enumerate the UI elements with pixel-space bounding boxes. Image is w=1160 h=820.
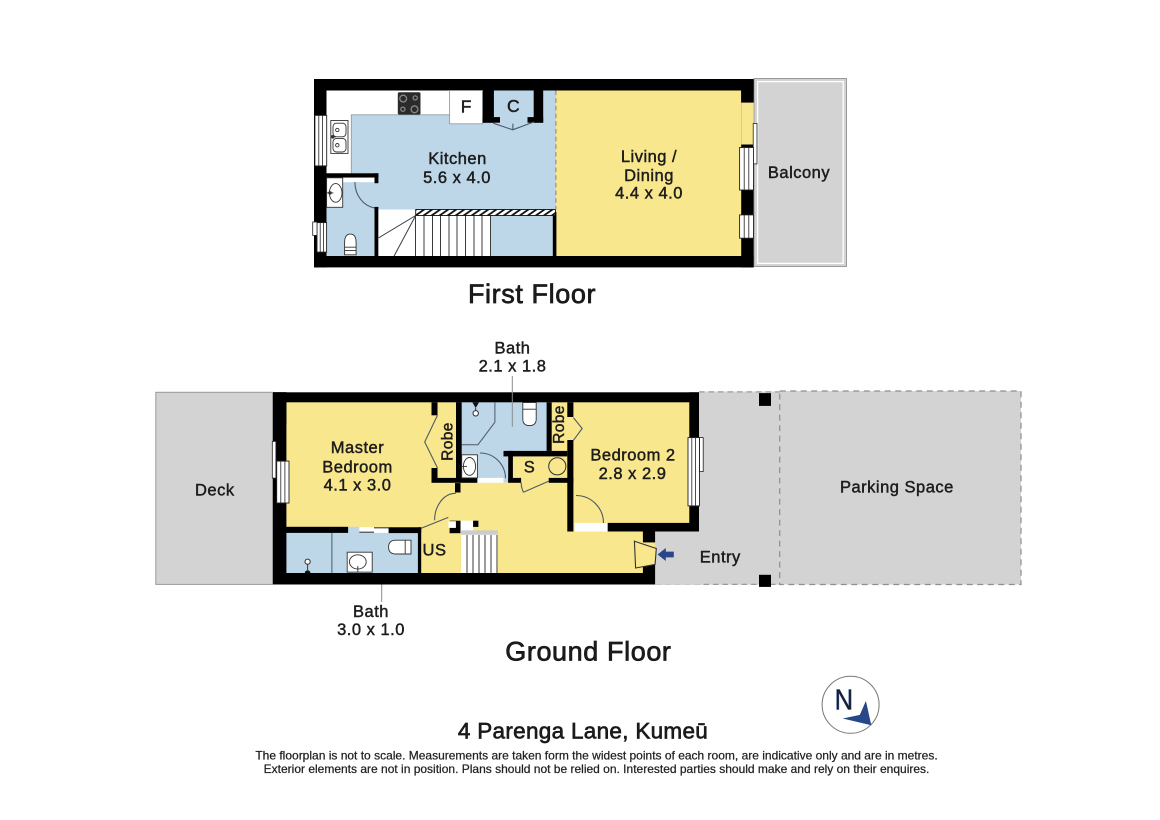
svg-text:Deck: Deck — [195, 482, 235, 500]
svg-text:Exterior elements are not in p: Exterior elements are not in position. P… — [264, 762, 930, 776]
svg-text:First Floor: First Floor — [468, 279, 596, 309]
svg-text:Bath: Bath — [495, 340, 531, 358]
svg-text:Robe: Robe — [551, 405, 568, 444]
svg-text:F: F — [461, 97, 472, 117]
svg-text:Robe: Robe — [439, 422, 456, 461]
svg-text:Kitchen: Kitchen — [428, 150, 487, 168]
svg-text:Master: Master — [331, 439, 384, 457]
svg-text:The floorplan is not to scale.: The floorplan is not to scale. Measureme… — [255, 749, 937, 763]
svg-text:2.1 x 1.8: 2.1 x 1.8 — [479, 358, 547, 376]
svg-text:Balcony: Balcony — [768, 164, 830, 182]
svg-text:C: C — [507, 96, 520, 116]
svg-text:Entry: Entry — [700, 549, 741, 567]
svg-text:Bedroom: Bedroom — [322, 459, 392, 477]
svg-text:S: S — [524, 459, 536, 477]
svg-text:4.4 x 4.0: 4.4 x 4.0 — [615, 185, 683, 203]
svg-text:Parking Space: Parking Space — [840, 479, 954, 497]
svg-text:Bath: Bath — [353, 603, 389, 621]
svg-text:Dining: Dining — [624, 167, 674, 185]
svg-text:2.8 x 2.9: 2.8 x 2.9 — [599, 465, 667, 483]
svg-text:Living /: Living / — [621, 148, 677, 166]
svg-text:US: US — [423, 542, 447, 560]
svg-text:Ground Floor: Ground Floor — [505, 637, 671, 667]
svg-text:4.1 x 3.0: 4.1 x 3.0 — [324, 477, 392, 495]
svg-text:5.6 x 4.0: 5.6 x 4.0 — [423, 169, 491, 187]
svg-text:4 Parenga Lane, Kumeū: 4 Parenga Lane, Kumeū — [458, 719, 708, 744]
svg-text:Bedroom 2: Bedroom 2 — [590, 447, 675, 465]
svg-text:3.0 x 1.0: 3.0 x 1.0 — [337, 621, 405, 639]
svg-text:N: N — [835, 685, 854, 717]
